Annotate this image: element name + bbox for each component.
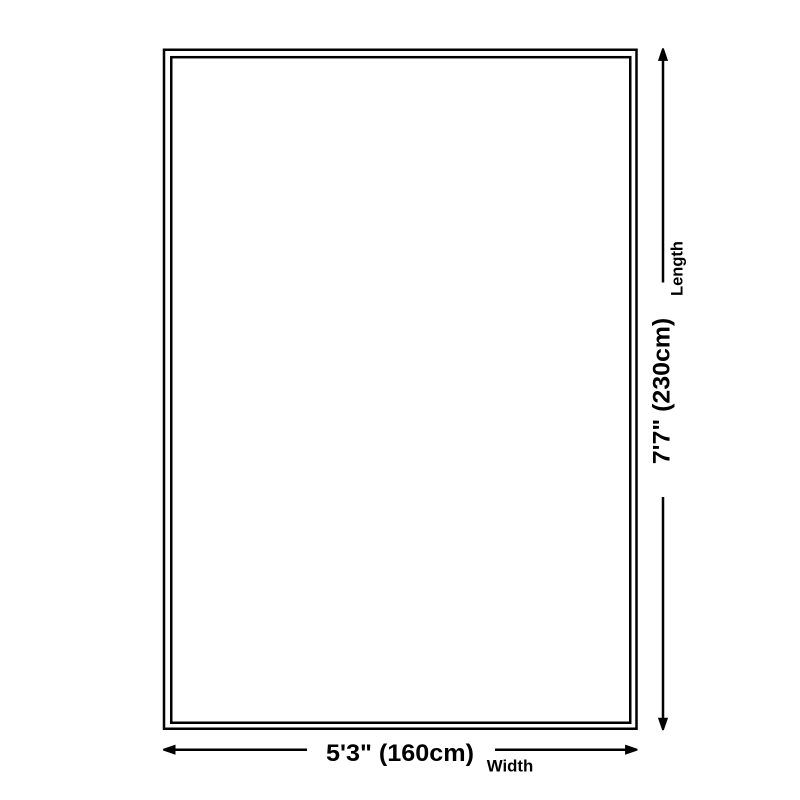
svg-text:Length: Length <box>667 241 686 296</box>
svg-text:7'7" (230cm): 7'7" (230cm) <box>649 318 676 465</box>
svg-text:Width: Width <box>487 757 534 776</box>
svg-text:5'3" (160cm): 5'3" (160cm) <box>326 740 474 767</box>
